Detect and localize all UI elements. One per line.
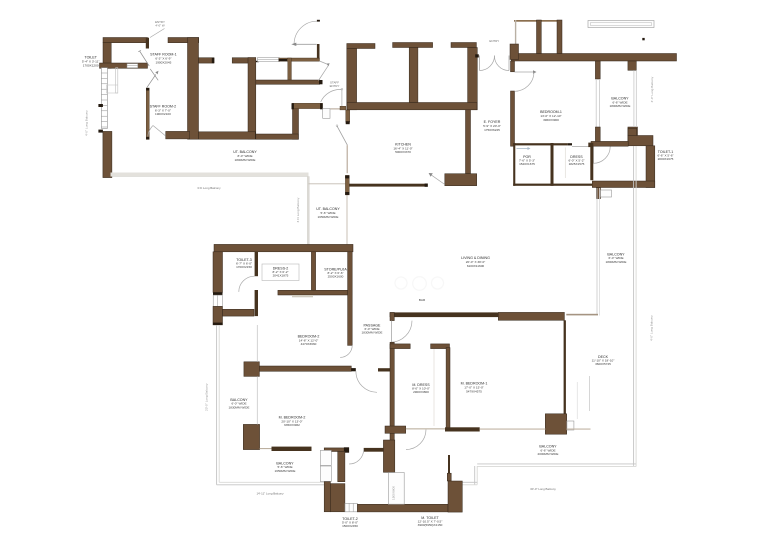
svg-text:4470X3660: 4470X3660: [301, 342, 317, 346]
svg-text:5000X3370: 5000X3370: [395, 150, 411, 154]
svg-text:2500X1600: 2500X1600: [328, 275, 344, 279]
svg-text:1650MM WIDE: 1650MM WIDE: [275, 469, 296, 473]
svg-text:1830MM WIDE: 1830MM WIDE: [229, 406, 250, 410]
svg-text:1500X600: 1500X600: [392, 486, 396, 500]
svg-text:3900(5950)X2150: 3900(5950)X2150: [418, 523, 443, 527]
svg-text:6100X11600: 6100X11600: [467, 264, 485, 268]
svg-text:ENTRY: ENTRY: [330, 84, 340, 88]
svg-text:6350X3962: 6350X3962: [284, 423, 300, 427]
svg-text:2000X1675: 2000X1675: [658, 157, 674, 161]
svg-text:2900X3800: 2900X3800: [413, 390, 429, 394]
svg-text:1500X2450: 1500X2450: [342, 524, 358, 528]
svg-text:3 Ft Long Balcony: 3 Ft Long Balcony: [197, 186, 221, 190]
svg-text:1830MM WIDE: 1830MM WIDE: [362, 331, 383, 335]
svg-text:ENTRY: ENTRY: [489, 39, 499, 43]
svg-text:14'-11" Long Balcony: 14'-11" Long Balcony: [256, 491, 284, 495]
svg-text:BAR: BAR: [419, 298, 426, 302]
svg-text:1700X2150: 1700X2150: [236, 265, 252, 269]
svg-text:1900X2100: 1900X2100: [155, 112, 171, 116]
svg-text:5479X4575: 5479X4575: [466, 389, 482, 393]
svg-text:1750X6225: 1750X6225: [484, 128, 500, 132]
svg-text:1825X1575: 1825X1575: [569, 162, 585, 166]
svg-text:4'-0" Long Balcony: 4'-0" Long Balcony: [650, 76, 654, 102]
svg-text:2041X1875: 2041X1875: [273, 274, 289, 278]
svg-text:30'-0" Long Balcony: 30'-0" Long Balcony: [530, 487, 556, 491]
svg-text:2000MM WIDE: 2000MM WIDE: [538, 452, 559, 456]
svg-text:1900X2045: 1900X2045: [155, 60, 171, 64]
svg-text:1520X1675: 1520X1675: [519, 162, 535, 166]
svg-text:1800MM WIDE: 1800MM WIDE: [606, 260, 627, 264]
svg-text:4'-0" W: 4'-0" W: [155, 24, 165, 28]
svg-text:1650MM WIDE: 1650MM WIDE: [318, 215, 339, 219]
svg-text:1700X1200: 1700X1200: [83, 63, 99, 67]
svg-text:23'-0" Long Balcony: 23'-0" Long Balcony: [205, 383, 209, 411]
svg-text:1800MM WIDE: 1800MM WIDE: [610, 104, 631, 108]
svg-text:3960X3900: 3960X3900: [543, 118, 559, 122]
svg-text:3 Ft Long Balcony: 3 Ft Long Balcony: [296, 197, 300, 222]
svg-text:3600X5725: 3600X5725: [595, 362, 611, 366]
svg-text:4'-0" Long Balcony: 4'-0" Long Balcony: [85, 110, 89, 136]
svg-text:4'-0" Long Balcony: 4'-0" Long Balcony: [650, 315, 654, 341]
svg-text:1800MM WIDE: 1800MM WIDE: [235, 158, 256, 162]
